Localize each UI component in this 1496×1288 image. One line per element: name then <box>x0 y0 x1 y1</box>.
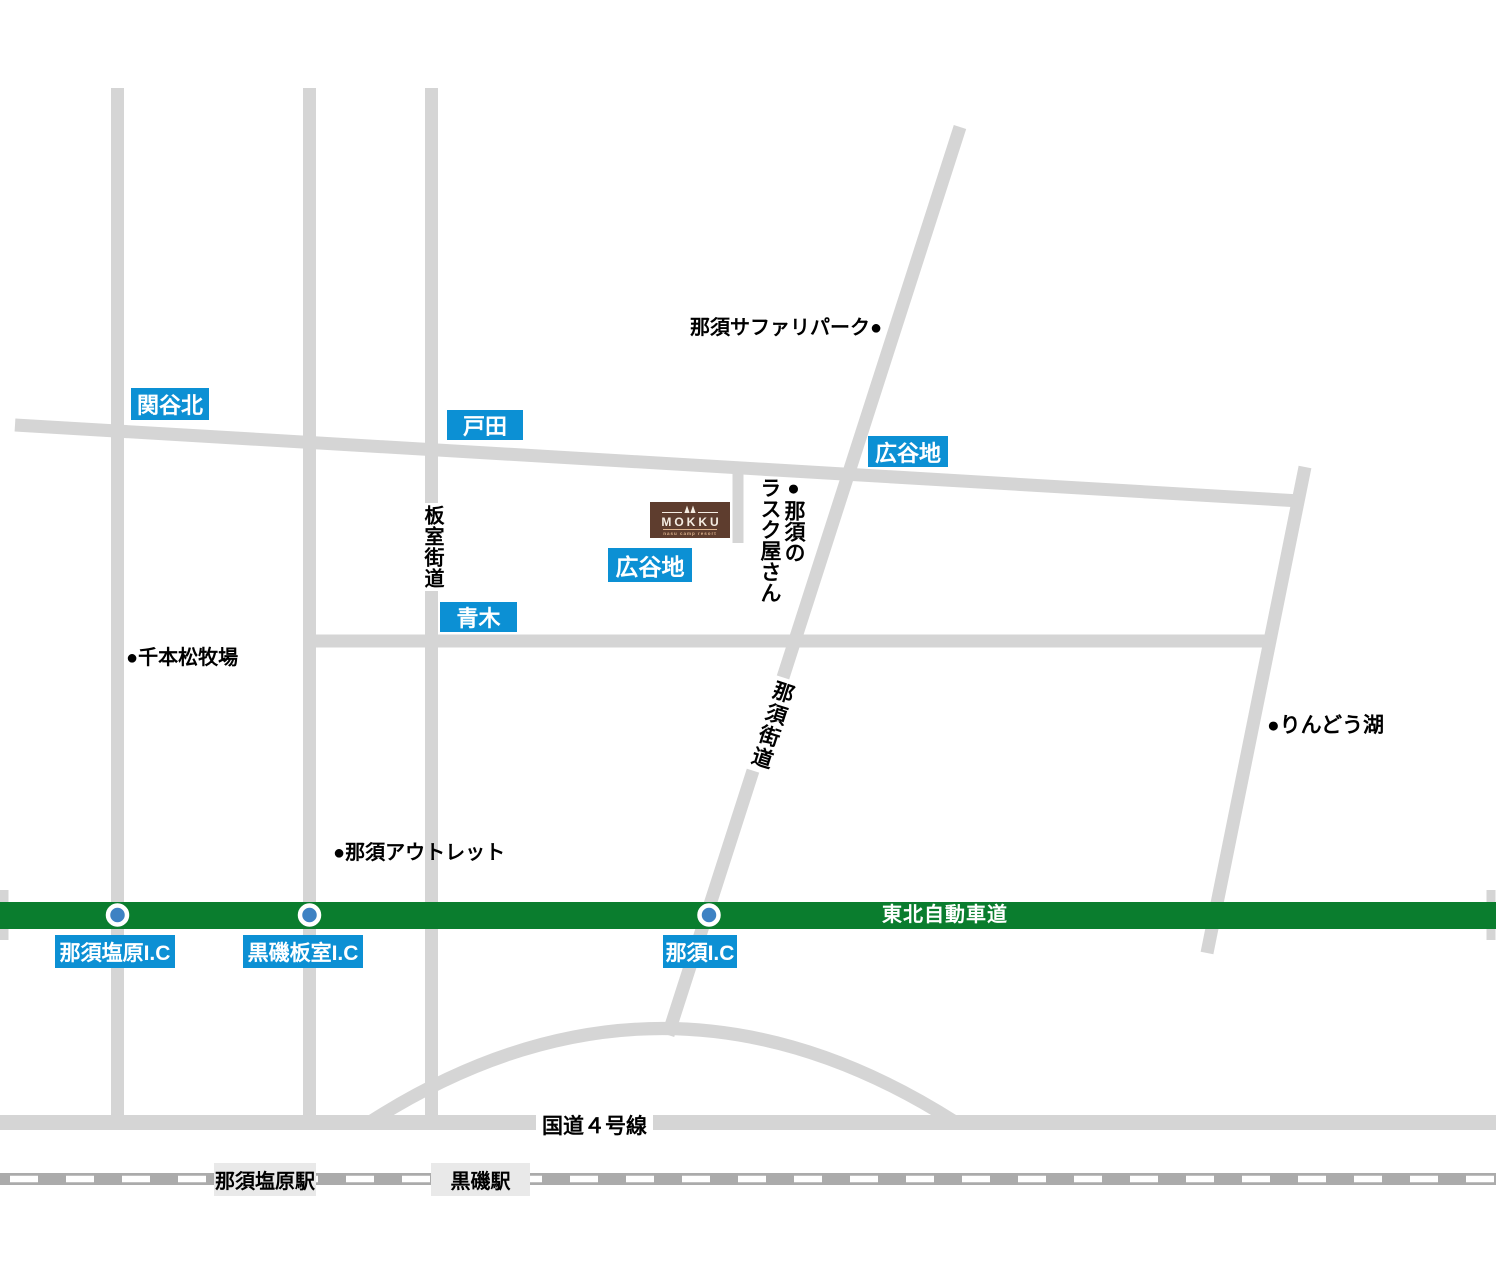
label-toda: 戸田 <box>447 410 523 440</box>
label-hiroyachi-lower: 広谷地 <box>608 548 692 582</box>
roads-layer <box>0 0 1496 1288</box>
label-kuroiso-itamuro-ic: 黒磯板室I.C <box>243 935 363 968</box>
label-route4: 国道４号線 <box>536 1108 653 1142</box>
ic-marker-kuroiso-itamuro <box>300 906 319 925</box>
road-east-diagonal <box>1207 467 1305 953</box>
ic-marker-nasushiobara <box>108 906 127 925</box>
road-upper-slanted <box>15 425 1300 501</box>
label-expressway: 東北自動車道 <box>882 902 1008 929</box>
label-sekiyakita: 関谷北 <box>131 388 209 420</box>
label-senbonmatsu-farm: ●千本松牧場 <box>126 646 238 670</box>
label-rusk-shop-col-right: ●那須の <box>781 477 805 603</box>
access-map: 関谷北 戸田 広谷地 広谷地 青木 那須塩原I.C 黒磯板室I.C 那須I.C … <box>0 0 1496 1288</box>
label-nasushiobara-ic: 那須塩原I.C <box>55 935 175 968</box>
mokku-trees-icon <box>660 505 720 515</box>
label-rusk-shop-col-left: ラスク屋さん <box>757 477 781 603</box>
mokku-logo: MOKKU nasu camp resort <box>650 502 730 538</box>
expressway-band <box>0 902 1496 929</box>
label-itamuro-kaido: 板室街道 <box>415 503 450 591</box>
label-kuroiso-station: 黒磯駅 <box>431 1163 530 1196</box>
ic-marker-nasu <box>700 906 719 925</box>
label-aoki: 青木 <box>440 602 517 632</box>
mokku-logo-name: MOKKU <box>658 516 721 528</box>
label-safari-park: 那須サファリパーク● <box>690 316 882 340</box>
label-nasushiobara-station: 那須塩原駅 <box>214 1163 316 1196</box>
label-nasu-outlet: ●那須アウトレット <box>333 841 505 865</box>
label-nasu-ic: 那須I.C <box>663 935 737 968</box>
mokku-logo-subtitle: nasu camp resort <box>663 529 717 536</box>
label-rusk-shop: ●那須の ラスク屋さん <box>757 477 805 603</box>
label-hiroyachi-upper: 広谷地 <box>868 436 948 467</box>
label-rindo-lake: ●りんどう湖 <box>1267 714 1384 738</box>
road-nasu-kaido <box>668 127 960 1035</box>
road-bypass-arc <box>370 1029 955 1123</box>
